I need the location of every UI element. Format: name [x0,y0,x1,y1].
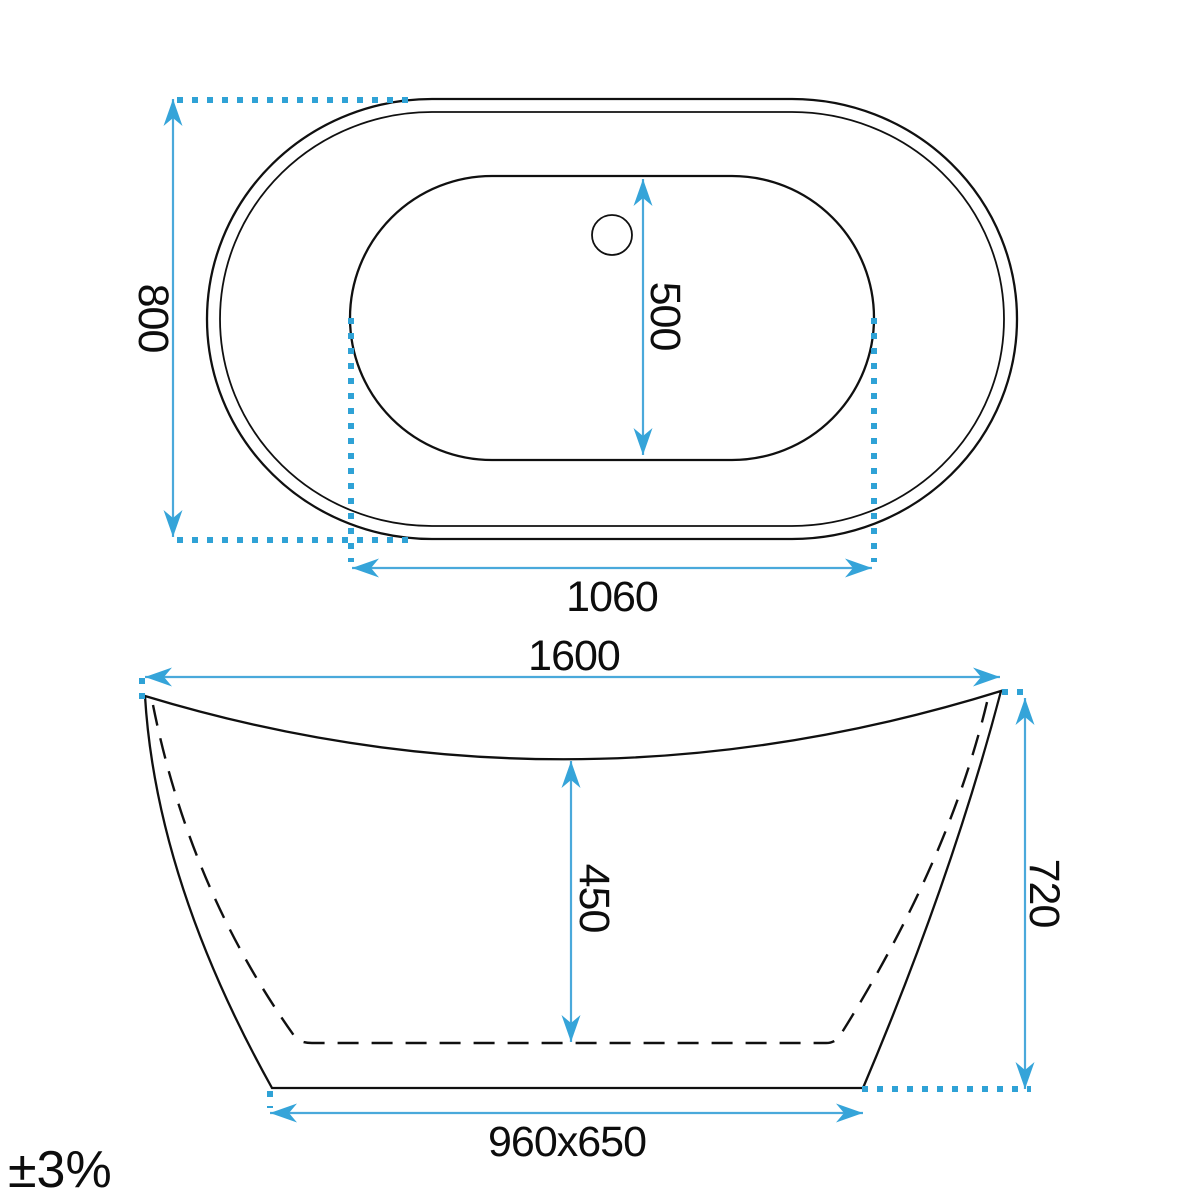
dim-500: 500 [634,179,689,455]
drawing-canvas: 800 500 1060 [0,0,1198,1200]
drain-hole-icon [592,215,632,255]
dim-960x650: 960x650 [270,1091,863,1166]
dim-label-500: 500 [641,282,689,351]
dim-720: 720 [862,698,1068,1089]
bathtub-dimension-drawing: 800 500 1060 [0,0,1198,1200]
dim-label-1060: 1060 [566,573,658,621]
dim-1060: 1060 [351,318,874,621]
front-view: 1600 450 720 960x650 [142,632,1068,1166]
dim-label-960x650: 960x650 [488,1118,646,1166]
dim-label-800: 800 [129,284,177,353]
dim-1600: 1600 [142,632,1024,700]
tolerance-note: ±3% [8,1141,112,1199]
top-view: 800 500 1060 [129,99,1017,621]
dim-label-450: 450 [570,864,618,933]
tub-basin-outline [350,176,874,460]
dim-450: 450 [562,761,618,1042]
dim-label-720: 720 [1020,859,1068,928]
dim-label-1600: 1600 [528,632,620,680]
tub-inner-rim [220,112,1004,526]
tub-outer-rim [207,99,1017,539]
